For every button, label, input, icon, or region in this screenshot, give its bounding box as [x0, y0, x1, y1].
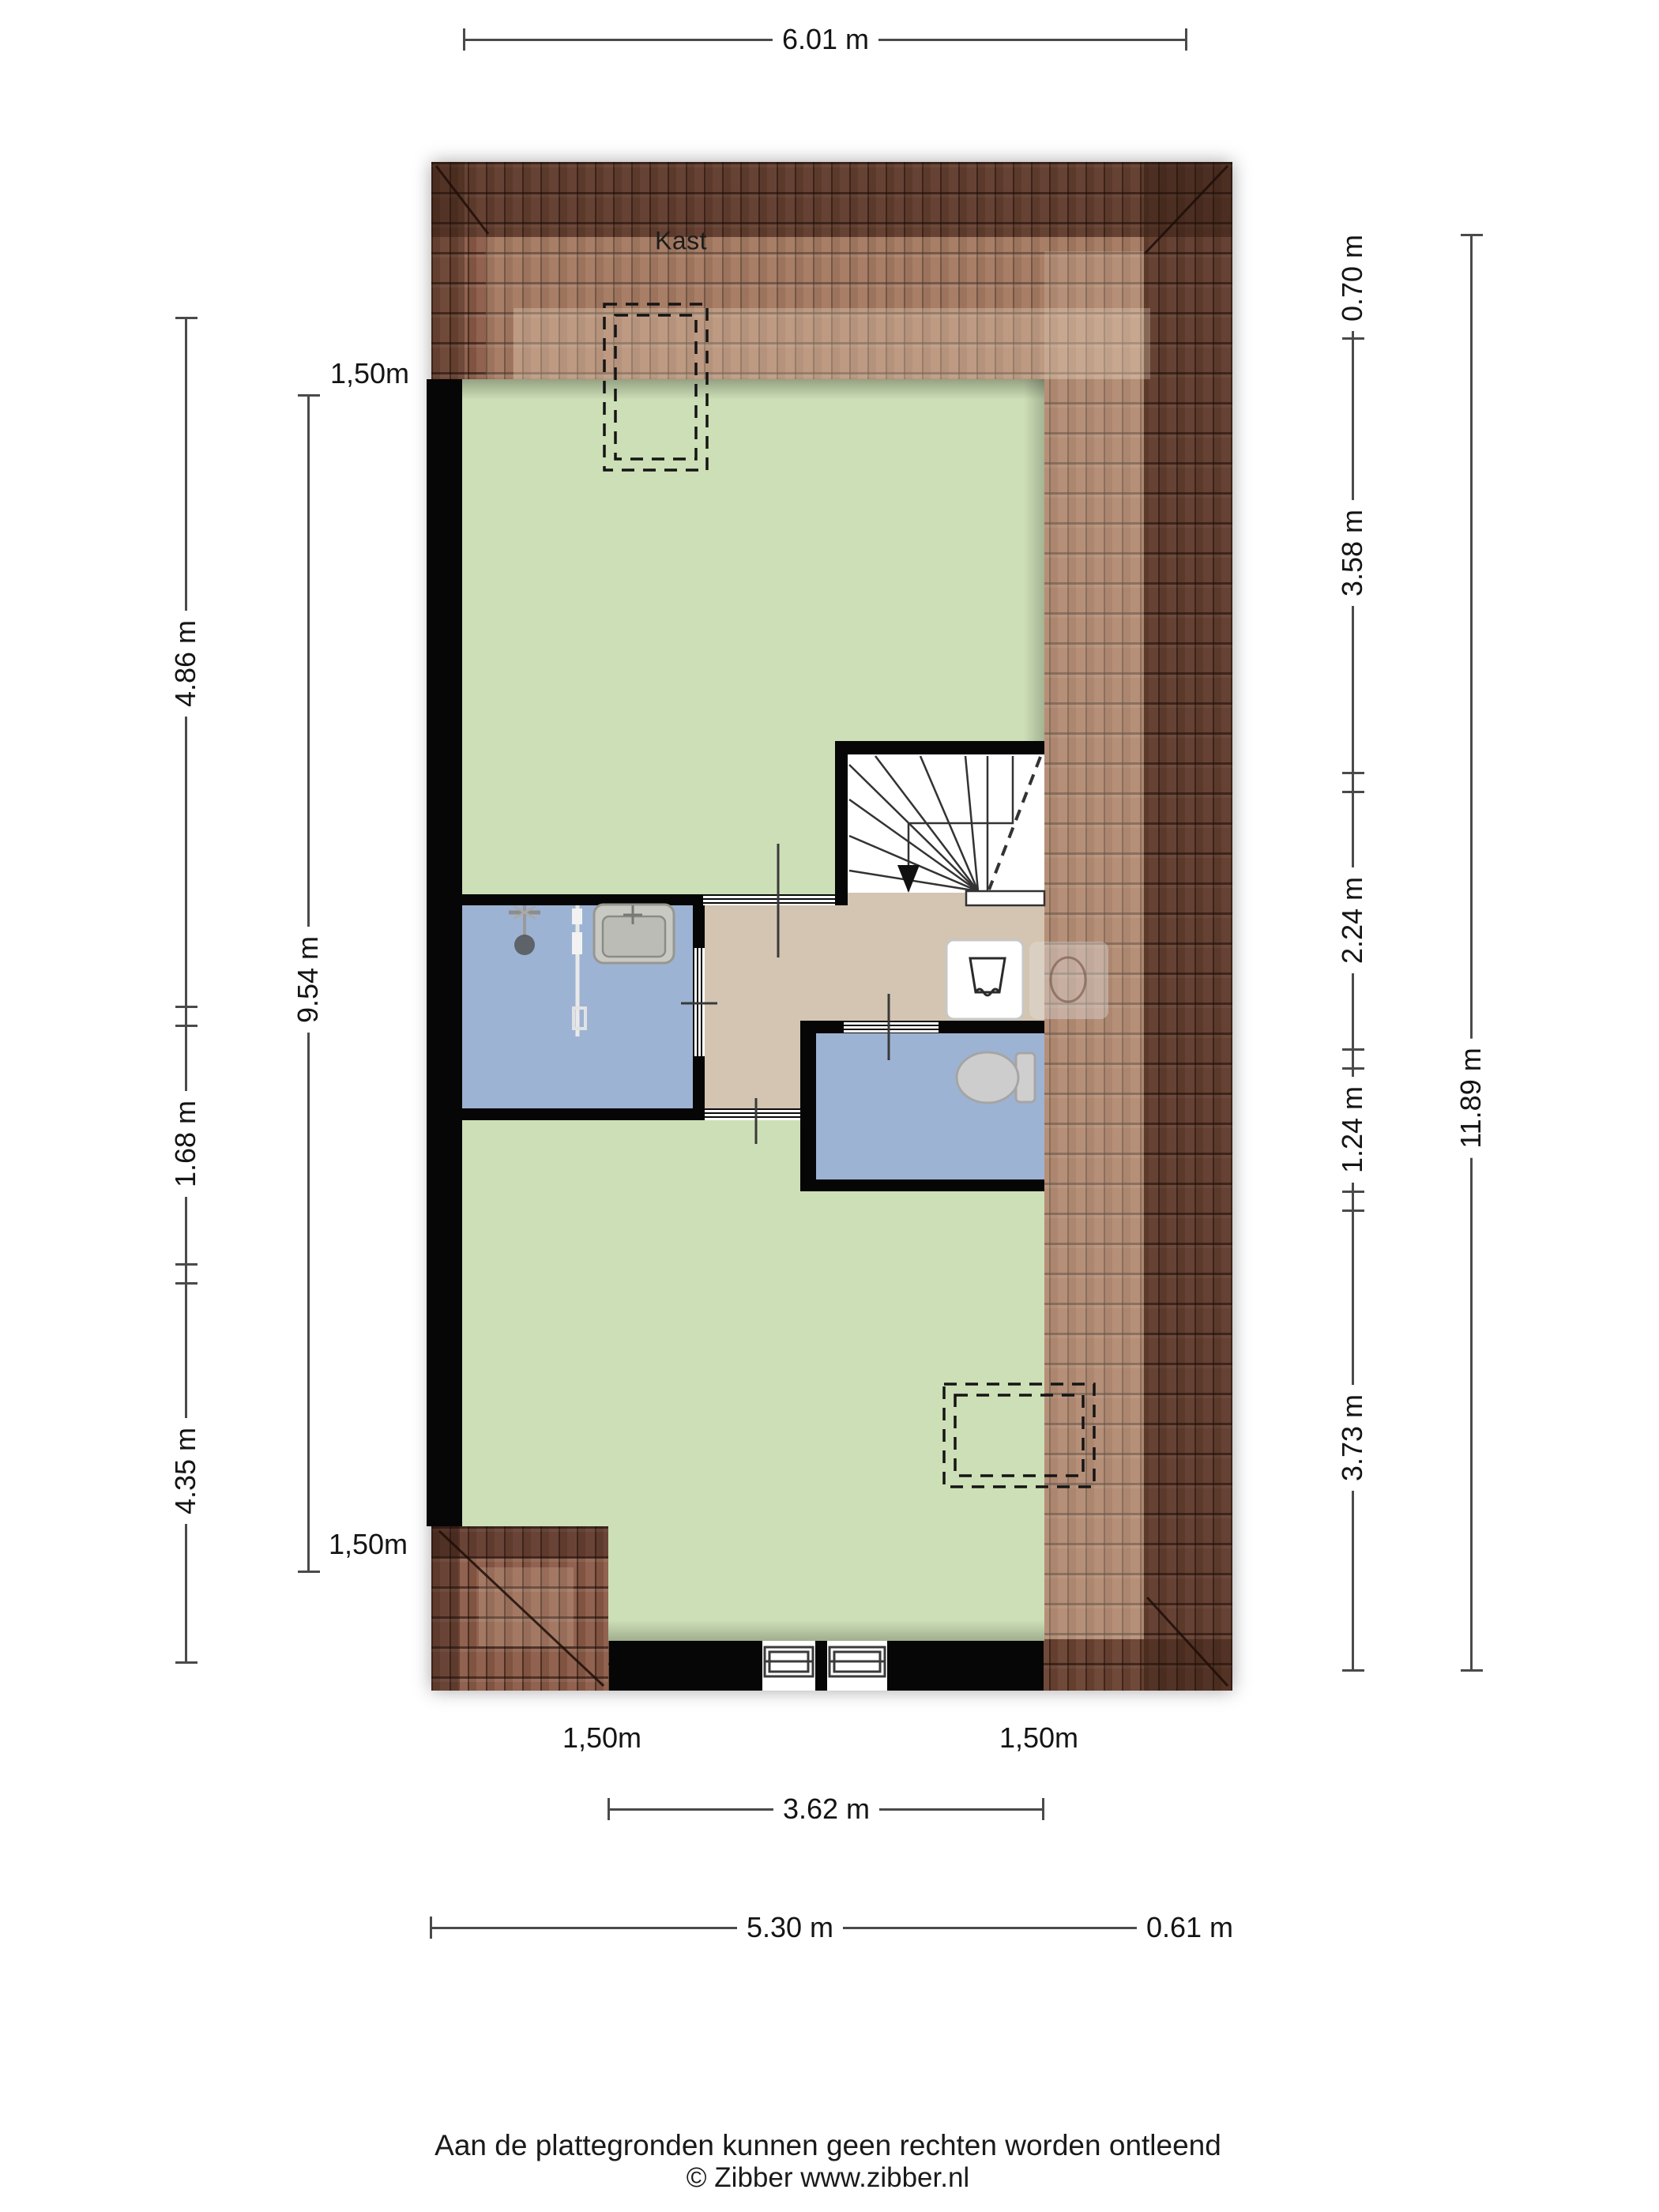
roof-dark-band-top [431, 162, 1232, 237]
dim-label-right-3: 2.24 m [1335, 867, 1370, 973]
dim-label-clearance-bottom-1: 1,50m [553, 1721, 651, 1755]
room-bedroom-bottom-right [800, 1191, 1044, 1641]
dim-line-right-outer [1470, 235, 1473, 1671]
window-slot-right [827, 1641, 887, 1691]
staircase-area [848, 754, 1044, 894]
tick [1342, 1048, 1364, 1051]
tick [1342, 1067, 1364, 1070]
tick [1461, 234, 1483, 236]
room-bedroom-top [462, 379, 1044, 741]
tick [1342, 772, 1364, 774]
dim-label-bottom-overhang: 0.61 m [1137, 1910, 1243, 1945]
dim-label-left-outer-mid: 1.68 m [168, 1091, 203, 1197]
tick [430, 1917, 432, 1939]
room-bedroom-top-lower [462, 741, 835, 894]
tick [175, 1282, 197, 1285]
window-slot-left [762, 1641, 815, 1691]
roof-dark-band-right [1144, 162, 1232, 1691]
tick [1342, 1191, 1364, 1193]
tick [1342, 337, 1364, 340]
dim-label-bottom-inner: 3.62 m [773, 1792, 879, 1826]
wall-bathroom-bottom [427, 1108, 705, 1120]
door-bathroom [693, 948, 705, 1056]
wall-toilet-bottom [800, 1179, 1044, 1191]
tick [1342, 1209, 1364, 1212]
dim-label-left-inner-total: 9.54 m [291, 927, 325, 1033]
door-toilet [844, 1021, 939, 1033]
tick [608, 1798, 610, 1820]
room-landing-corridor [705, 1021, 804, 1108]
tick [175, 1006, 197, 1008]
room-bathroom [462, 905, 693, 1108]
tick [175, 1025, 197, 1027]
room-toilet [816, 1033, 1044, 1179]
door-bedroom-top [703, 894, 835, 905]
shadow-under-roof-top [462, 379, 1044, 400]
wall-toilet-left [800, 1021, 816, 1191]
tick [175, 317, 197, 319]
door-bedroom-bottom [705, 1108, 800, 1120]
dim-label-right-5: 3.73 m [1335, 1385, 1370, 1491]
exterior-wall-left [427, 379, 462, 1526]
stairs-wall-top [835, 741, 1044, 754]
wall-toilet-top-right [939, 1021, 1044, 1033]
room-label-kast: Kast [655, 227, 707, 256]
tick [175, 1661, 197, 1664]
dim-label-right-outer-total: 11.89 m [1454, 1038, 1488, 1157]
wall-bathroom-right-upper [693, 905, 705, 948]
exterior-wall-bottom [609, 1641, 1044, 1691]
dim-label-right-4: 1.24 m [1335, 1077, 1370, 1183]
tick [1342, 791, 1364, 793]
dim-label-clearance-bottom-2: 1,50m [990, 1721, 1088, 1755]
floorplan-page: Kast Slaapkamer Overloop Badkamer Slaapk… [0, 0, 1659, 2212]
footer-disclaimer: Aan de plattegronden kunnen geen rechten… [434, 2129, 1221, 2162]
dim-label-bottom-main: 5.30 m [737, 1910, 843, 1945]
roof-corner-piece [431, 1526, 608, 1691]
dim-label-left-outer-top: 4.86 m [168, 611, 203, 717]
appliance-dryer-ghost [1029, 942, 1108, 1019]
dim-label-right-1: 0.70 m [1335, 225, 1370, 331]
tick [298, 1571, 320, 1573]
tick [1185, 28, 1187, 51]
dim-label-clearance-bottom-left: 1,50m [319, 1527, 417, 1562]
room-landing-right [848, 893, 1044, 1021]
tick [1461, 1669, 1483, 1672]
dim-label-left-outer-bottom: 4.35 m [168, 1418, 203, 1524]
tick [1042, 1798, 1044, 1820]
dim-label-right-2: 3.58 m [1335, 500, 1370, 606]
tick [298, 394, 320, 397]
wall-toilet-top-left [816, 1021, 844, 1033]
footer-copyright: © Zibber www.zibber.nl [687, 2162, 969, 2194]
wall-bedroom-top-bottom [427, 894, 703, 905]
stairs-wall-left [835, 741, 848, 905]
dim-label-top-width: 6.01 m [773, 22, 878, 57]
tick [1342, 1669, 1364, 1672]
tick [463, 28, 465, 51]
tick [175, 1263, 197, 1266]
roof-dark-band-left [431, 162, 465, 383]
room-landing-mid [705, 905, 848, 1021]
dim-label-clearance-top-left: 1,50m [321, 356, 419, 391]
